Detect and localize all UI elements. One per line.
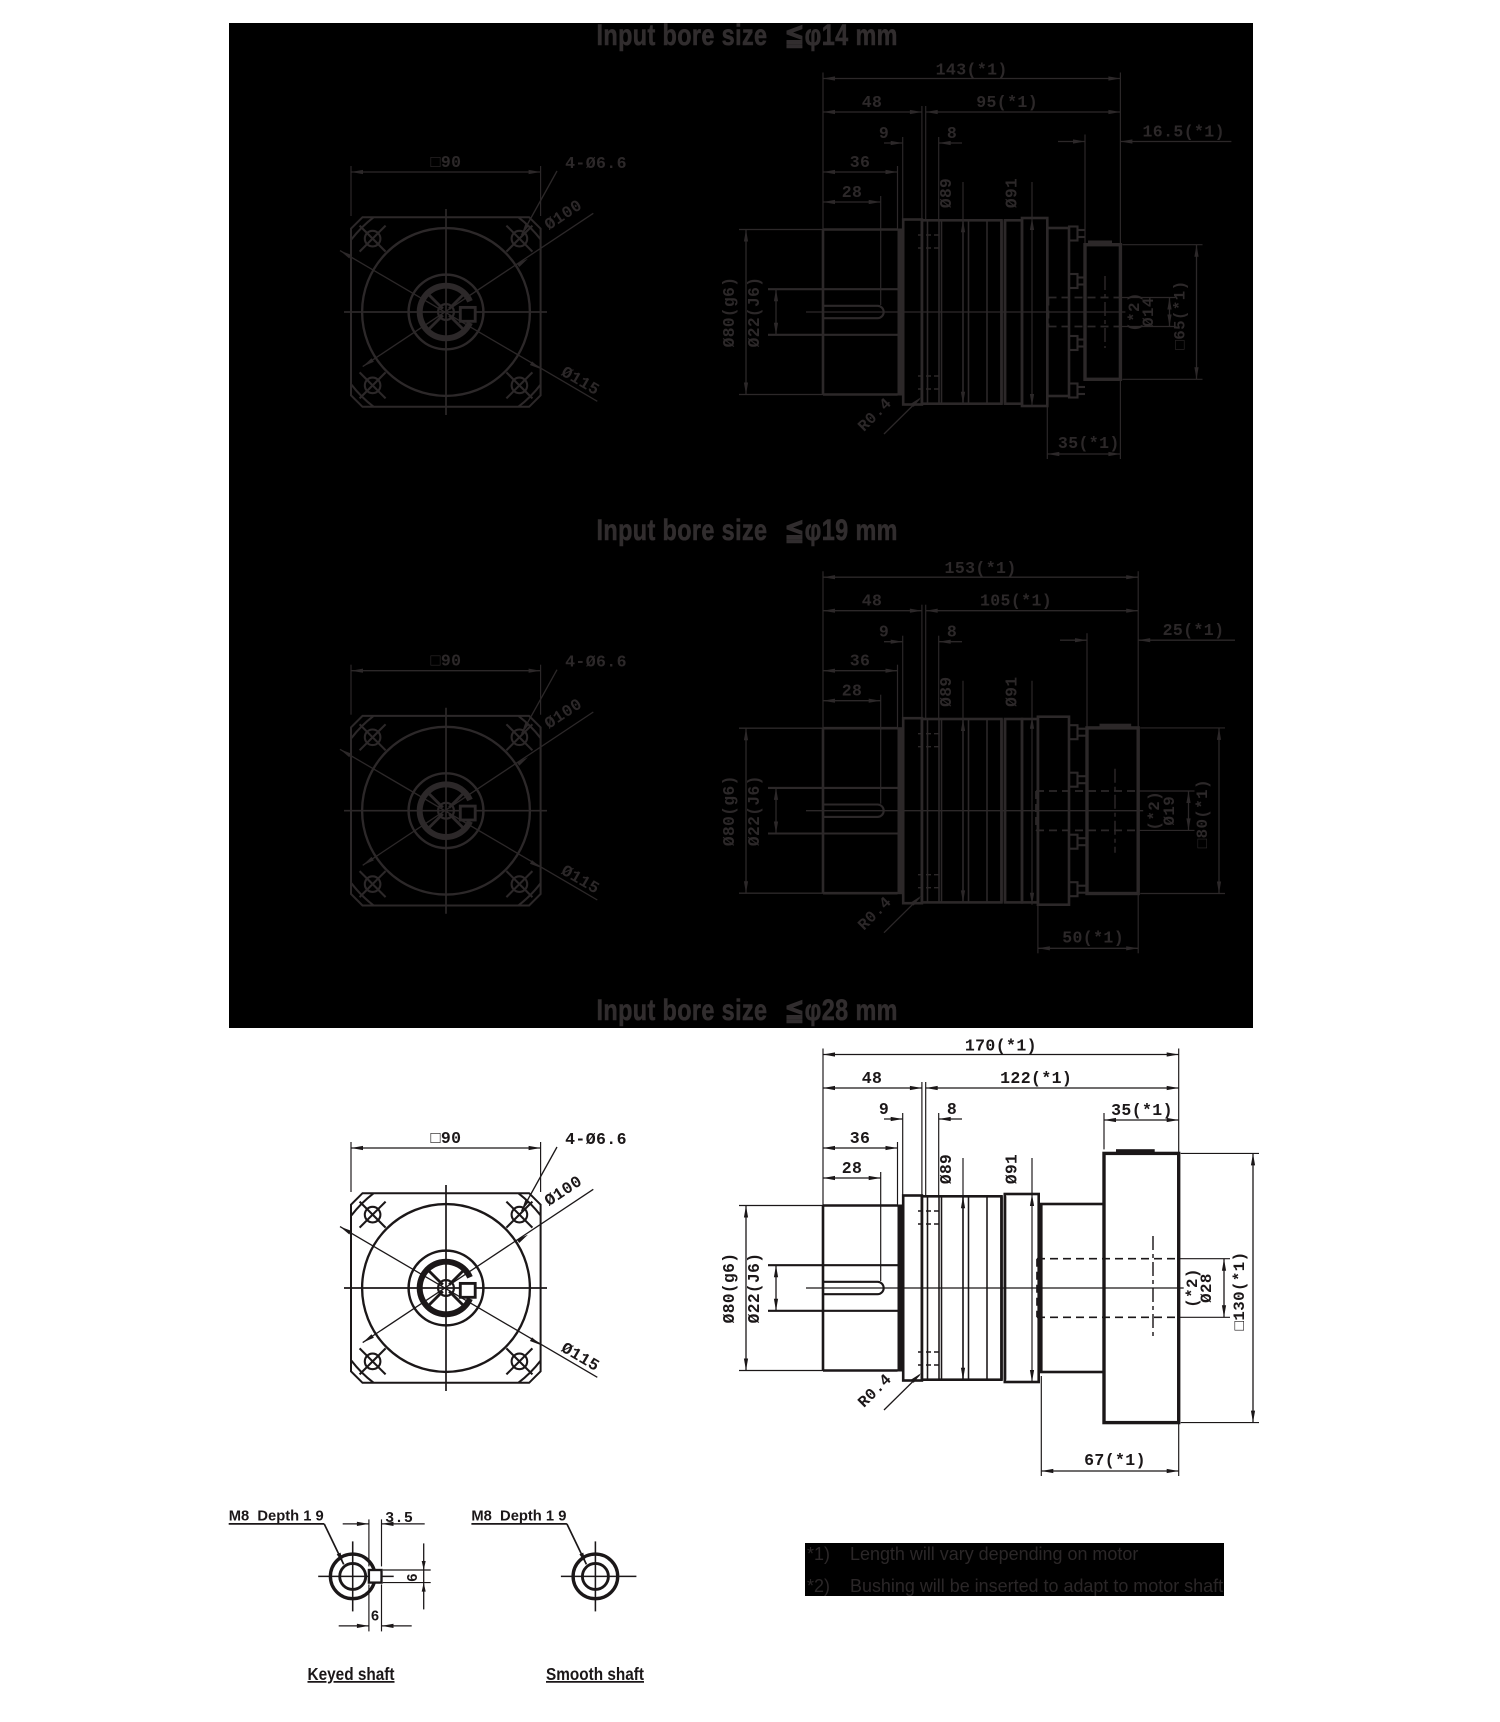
svg-text:3.5: 3.5: [385, 1510, 413, 1527]
svg-text:M8 Depth 1 9: M8 Depth 1 9: [229, 1507, 324, 1524]
svg-text:Ø100: Ø100: [541, 196, 586, 235]
svg-text:Ø115: Ø115: [558, 861, 603, 898]
svg-text:9: 9: [879, 1100, 889, 1119]
svg-text:Ø80(g6): Ø80(g6): [721, 1253, 739, 1324]
svg-text:Ø100: Ø100: [541, 1172, 586, 1211]
svg-text:R0.4: R0.4: [855, 1371, 896, 1412]
svg-text:50(*1): 50(*1): [1062, 928, 1124, 947]
svg-text:Ø89: Ø89: [938, 677, 956, 707]
svg-text:Ø22(J6): Ø22(J6): [746, 1253, 764, 1324]
svg-text:Ø28: Ø28: [1198, 1273, 1216, 1303]
svg-text:170(*1): 170(*1): [965, 1037, 1037, 1056]
svg-text:143(*1): 143(*1): [936, 61, 1008, 80]
svg-text:Ø91: Ø91: [1004, 677, 1022, 707]
svg-text:Ø80(g6): Ø80(g6): [721, 775, 739, 846]
svg-text:36: 36: [850, 652, 871, 671]
svg-text:Ø100: Ø100: [541, 695, 586, 734]
svg-text:35(*1): 35(*1): [1111, 1101, 1173, 1120]
svg-text:Ø89: Ø89: [938, 1154, 956, 1184]
svg-text:Ø14: Ø14: [1140, 297, 1158, 327]
svg-text:Ø89: Ø89: [938, 178, 956, 208]
svg-text:28: 28: [842, 1159, 863, 1178]
svg-text:4-Ø6.6: 4-Ø6.6: [565, 653, 627, 672]
svg-text:8: 8: [947, 124, 957, 143]
svg-text:28: 28: [842, 183, 863, 202]
svg-text:R0.4: R0.4: [855, 395, 896, 436]
svg-text:16.5(*1): 16.5(*1): [1142, 123, 1224, 142]
svg-text:153(*1): 153(*1): [945, 559, 1017, 578]
svg-text:95(*1): 95(*1): [976, 93, 1038, 112]
svg-text:36: 36: [850, 1129, 871, 1148]
svg-text:□80(*1): □80(*1): [1194, 779, 1212, 848]
svg-text:Ø19: Ø19: [1161, 796, 1179, 826]
svg-text:8: 8: [947, 623, 957, 642]
svg-text:□130(*1): □130(*1): [1231, 1251, 1249, 1330]
svg-text:28: 28: [842, 682, 863, 701]
svg-text:48: 48: [862, 1069, 883, 1088]
svg-text:Smooth shaft: Smooth shaft: [546, 1664, 644, 1684]
svg-text:Keyed shaft: Keyed shaft: [308, 1664, 395, 1684]
svg-text:Ø115: Ø115: [558, 1339, 603, 1376]
svg-text:36: 36: [850, 153, 871, 172]
svg-text:9: 9: [879, 623, 889, 642]
svg-text:□90: □90: [431, 652, 462, 671]
svg-text:Ø22(J6): Ø22(J6): [746, 277, 764, 348]
svg-text:6: 6: [406, 1573, 422, 1582]
svg-text:35(*1): 35(*1): [1058, 434, 1120, 453]
svg-text:48: 48: [862, 592, 883, 611]
svg-text:122(*1): 122(*1): [1000, 1069, 1072, 1088]
svg-text:Ø91: Ø91: [1004, 178, 1022, 208]
svg-text:Ø80(g6): Ø80(g6): [721, 277, 739, 348]
svg-text:Ø115: Ø115: [558, 363, 603, 400]
svg-text:□65(*1): □65(*1): [1172, 280, 1190, 349]
svg-text:□90: □90: [431, 1129, 462, 1148]
svg-text:Ø91: Ø91: [1004, 1154, 1022, 1184]
svg-text:Ø22(J6): Ø22(J6): [746, 775, 764, 846]
svg-text:8: 8: [947, 1100, 957, 1119]
svg-text:9: 9: [879, 124, 889, 143]
svg-text:48: 48: [862, 93, 883, 112]
svg-text:25(*1): 25(*1): [1163, 621, 1225, 640]
svg-text:□90: □90: [431, 153, 462, 172]
svg-text:4-Ø6.6: 4-Ø6.6: [565, 154, 627, 173]
svg-text:67(*1): 67(*1): [1084, 1451, 1146, 1470]
svg-text:6: 6: [371, 1609, 380, 1625]
svg-text:R0.4: R0.4: [855, 893, 896, 934]
svg-text:105(*1): 105(*1): [980, 592, 1052, 611]
svg-text:4-Ø6.6: 4-Ø6.6: [565, 1130, 627, 1149]
svg-text:M8 Depth 1 9: M8 Depth 1 9: [471, 1507, 566, 1524]
